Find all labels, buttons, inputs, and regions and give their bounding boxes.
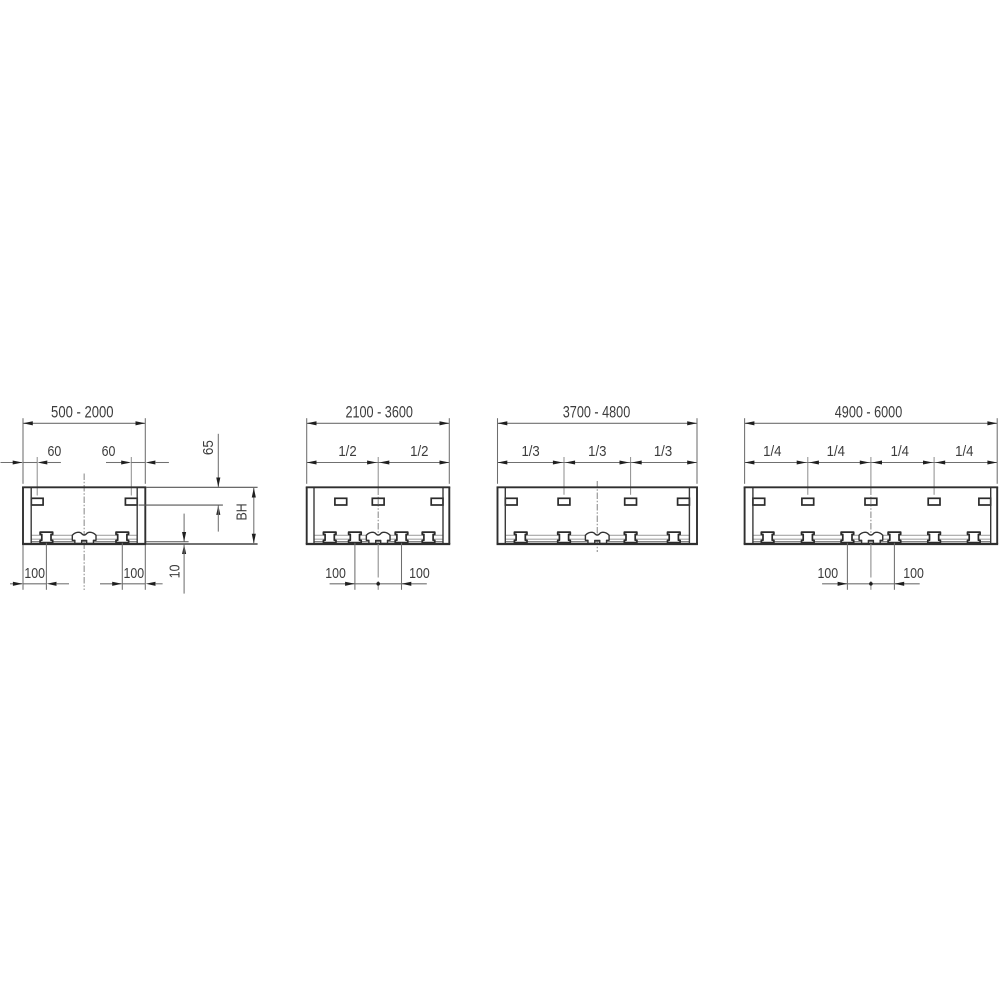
svg-text:1/3: 1/3 bbox=[521, 444, 539, 460]
svg-text:1/4: 1/4 bbox=[891, 444, 909, 460]
svg-text:100: 100 bbox=[124, 566, 145, 582]
svg-text:10: 10 bbox=[167, 565, 183, 579]
svg-text:500 - 2000: 500 - 2000 bbox=[51, 403, 114, 422]
svg-text:1/3: 1/3 bbox=[588, 444, 606, 460]
svg-text:100: 100 bbox=[818, 566, 839, 582]
svg-text:4900 - 6000: 4900 - 6000 bbox=[835, 403, 903, 422]
svg-text:60: 60 bbox=[102, 444, 116, 460]
svg-text:1/2: 1/2 bbox=[338, 444, 356, 460]
svg-text:100: 100 bbox=[409, 566, 430, 582]
svg-text:60: 60 bbox=[48, 444, 62, 460]
svg-text:BH: BH bbox=[235, 503, 251, 520]
svg-text:100: 100 bbox=[325, 566, 346, 582]
svg-text:100: 100 bbox=[24, 566, 45, 582]
svg-text:1/3: 1/3 bbox=[654, 444, 672, 460]
svg-text:1/4: 1/4 bbox=[955, 444, 973, 460]
svg-text:65: 65 bbox=[201, 440, 217, 455]
svg-text:1/4: 1/4 bbox=[763, 444, 781, 460]
svg-text:1/4: 1/4 bbox=[827, 444, 845, 460]
svg-text:3700 - 4800: 3700 - 4800 bbox=[563, 403, 631, 422]
svg-text:1/2: 1/2 bbox=[410, 444, 428, 460]
svg-text:100: 100 bbox=[903, 566, 924, 582]
svg-text:2100 - 3600: 2100 - 3600 bbox=[345, 403, 413, 422]
